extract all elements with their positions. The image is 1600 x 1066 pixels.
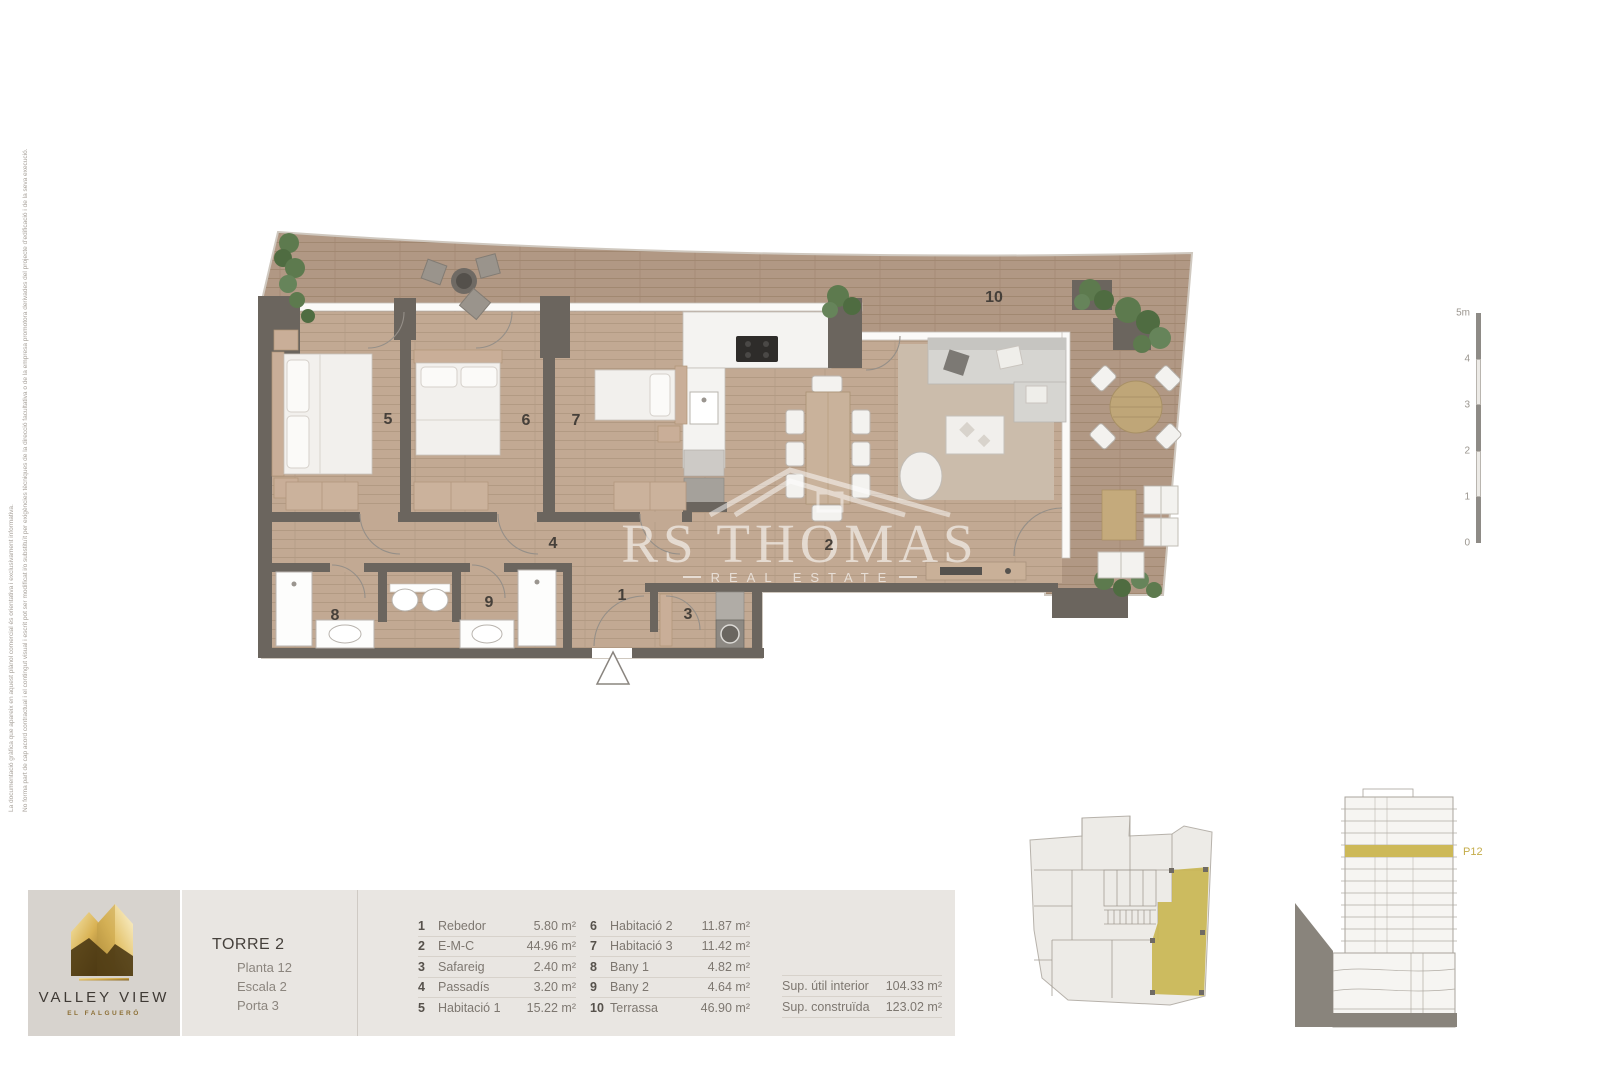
legend-area: 11.42 m² [702, 939, 750, 953]
legend-name: Habitació 1 [438, 1001, 527, 1015]
room-legend-panel: 1 Rebedor 5.80 m² 2 E-M-C 44.96 m² 3 Saf… [358, 890, 955, 1036]
valley-view-logo-icon [49, 898, 159, 982]
legend-area: 46.90 m² [701, 1001, 750, 1015]
scale-label-3: 3 [1448, 400, 1470, 411]
legend-name: Terrassa [610, 1001, 701, 1015]
legend-area: 4.64 m² [708, 980, 750, 994]
terrain [1295, 903, 1333, 1027]
legend-num: 7 [590, 939, 610, 953]
summary-value: 123.02 m² [886, 1000, 942, 1014]
legend-name: Bany 2 [610, 980, 708, 994]
bed-habitacio-1 [272, 330, 372, 498]
legend-name: E-M-C [438, 939, 527, 953]
summary-label: Sup. útil interior [782, 979, 886, 993]
cooktop [736, 336, 778, 362]
legend-num: 8 [590, 960, 610, 974]
scale-segment [1476, 313, 1481, 359]
room-label-bany-2: 9 [485, 594, 494, 611]
logo-subtitle: EL FALGUERÓ [28, 1010, 180, 1017]
legend-row: 2 E-M-C 44.96 m² [418, 937, 576, 958]
bed-habitacio-2 [414, 350, 502, 455]
armchair [900, 452, 942, 500]
legend-row: 4 Passadís 3.20 m² [418, 978, 576, 999]
legend-num: 5 [418, 1001, 438, 1015]
legend-num: 4 [418, 980, 438, 994]
brochure-page: La documentació gràfica que apareix en a… [0, 0, 1600, 1066]
legend-num: 10 [590, 1001, 610, 1015]
legend-area: 2.40 m² [534, 960, 576, 974]
room-label-emc: 2 [825, 537, 834, 554]
legend-column-1: 1 Rebedor 5.80 m² 2 E-M-C 44.96 m² 3 Saf… [418, 916, 576, 1018]
legend-area: 15.22 m² [527, 1001, 576, 1015]
terrain-base [1333, 1013, 1457, 1027]
scale-segment [1476, 405, 1481, 451]
surface-summary: Sup. útil interior 104.33 m² Sup. constr… [782, 975, 942, 1018]
legend-name: Bany 1 [610, 960, 708, 974]
floor-plan: RS THOMAS REAL ESTATE 5 6 7 4 8 9 1 3 2 … [240, 195, 1250, 695]
room-label-safareig: 3 [684, 606, 693, 623]
scale-label-0: 0 [1448, 538, 1470, 549]
watermark-name: RS THOMAS [621, 513, 978, 574]
legend-num: 2 [418, 939, 438, 953]
legend-row: 10 Terrassa 46.90 m² [590, 998, 750, 1018]
room-label-habitacio-2: 6 [522, 412, 531, 429]
room-label-rebedor: 1 [618, 587, 627, 604]
legend-name: Passadís [438, 980, 534, 994]
summary-label: Sup. construïda [782, 1000, 886, 1014]
floor-label: P12 [1463, 846, 1483, 858]
disclaimer-line-2: No forma part de cap acord contractual i… [22, 148, 29, 812]
legend-name: Habitació 3 [610, 939, 702, 953]
unit-info-panel: TORRE 2 Planta 12 Escala 2 Porta 3 [182, 890, 358, 1036]
scale-label-5m: 5m [1448, 308, 1470, 319]
legend-num: 3 [418, 960, 438, 974]
summary-row: Sup. útil interior 104.33 m² [782, 975, 942, 997]
scale-bar: 5m 4 3 2 1 0 [1448, 300, 1492, 556]
scale-segment [1476, 359, 1481, 405]
stair-info: Escala 2 [237, 977, 357, 996]
watermark-tagline: REAL ESTATE [711, 570, 896, 585]
developer-logo-box: VALLEY VIEW EL FALGUERÓ [28, 890, 180, 1036]
tower-name: TORRE 2 [212, 936, 357, 954]
key-plan [1012, 810, 1237, 1015]
legend-row: 7 Habitació 3 11.42 m² [590, 937, 750, 958]
wardrobes [286, 482, 686, 510]
legend-row: 6 Habitació 2 11.87 m² [590, 916, 750, 937]
scale-label-1: 1 [1448, 492, 1470, 503]
legend-area: 5.80 m² [534, 919, 576, 933]
legend-name: Safareig [438, 960, 534, 974]
room-label-bany-1: 8 [331, 607, 340, 624]
legend-num: 6 [590, 919, 610, 933]
building-section: P12 [1283, 745, 1493, 1040]
legend-num: 9 [590, 980, 610, 994]
door-info: Porta 3 [237, 996, 357, 1015]
legend-row: 5 Habitació 1 15.22 m² [418, 998, 576, 1018]
legend-area: 3.20 m² [534, 980, 576, 994]
room-label-habitacio-3: 7 [572, 412, 581, 429]
legend-num: 1 [418, 919, 438, 933]
room-label-terrassa: 10 [985, 289, 1003, 306]
legend-name: Rebedor [438, 919, 534, 933]
highlighted-floor [1345, 845, 1453, 857]
bidet [422, 589, 448, 611]
room-label-passadis: 4 [549, 535, 558, 552]
room-label-habitacio-1: 5 [384, 411, 393, 428]
legend-name: Habitació 2 [610, 919, 702, 933]
legend-area: 44.96 m² [527, 939, 576, 953]
legend-area: 11.87 m² [702, 919, 750, 933]
scale-label-2: 2 [1448, 446, 1470, 457]
legend-row: 9 Bany 2 4.64 m² [590, 978, 750, 999]
scale-segment [1476, 497, 1481, 543]
floor-info: Planta 12 [237, 958, 357, 977]
disclaimer-line-1: La documentació gràfica que apareix en a… [8, 504, 15, 812]
legend-row: 8 Bany 1 4.82 m² [590, 957, 750, 978]
kitchen-sink [690, 392, 718, 424]
legend-column-2: 6 Habitació 2 11.87 m² 7 Habitació 3 11.… [590, 916, 750, 1018]
coffee-table [946, 416, 1004, 454]
legend-row: 1 Rebedor 5.80 m² [418, 916, 576, 937]
summary-row: Sup. construïda 123.02 m² [782, 997, 942, 1018]
legend-row: 3 Safareig 2.40 m² [418, 957, 576, 978]
logo-title: VALLEY VIEW [28, 989, 180, 1006]
toilet [392, 589, 418, 611]
scale-label-4: 4 [1448, 354, 1470, 365]
scale-segment [1476, 451, 1481, 497]
summary-value: 104.33 m² [886, 979, 942, 993]
legend-area: 4.82 m² [708, 960, 750, 974]
